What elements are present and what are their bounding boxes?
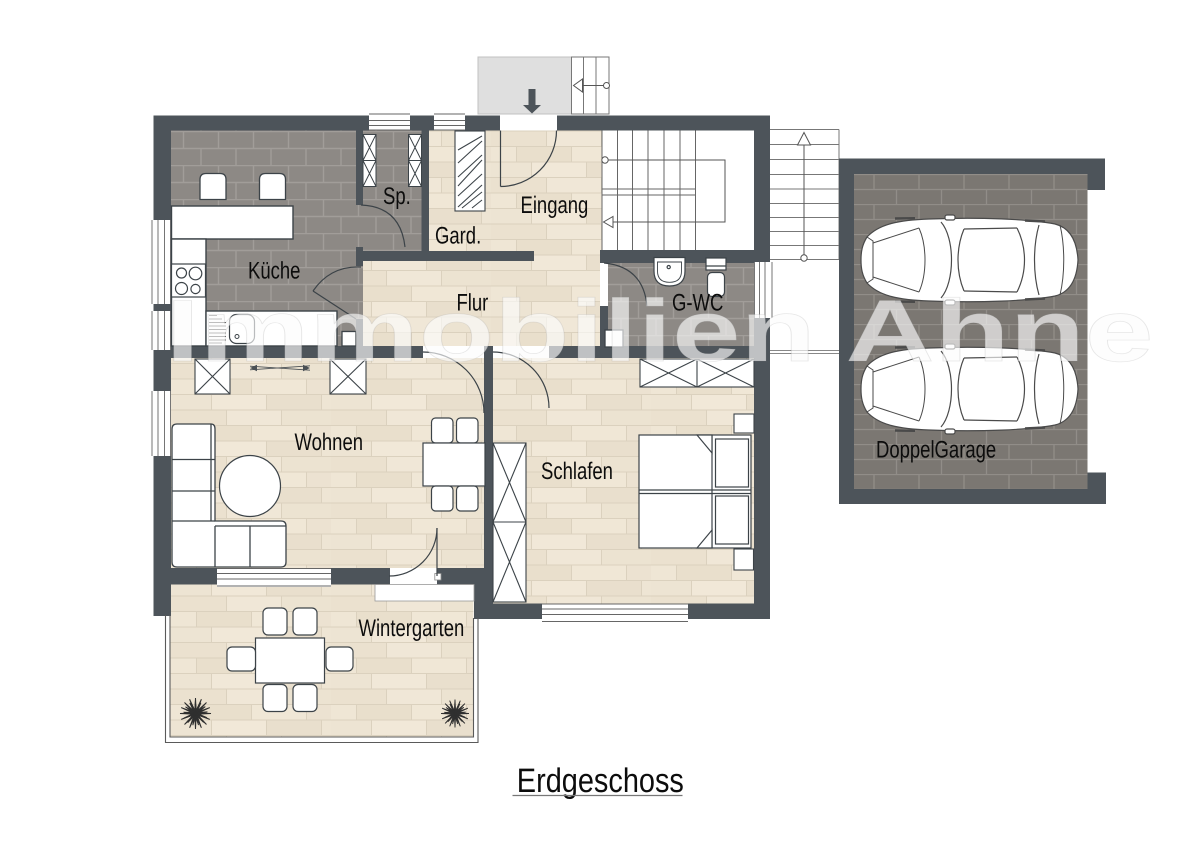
svg-text:Wohnen: Wohnen: [295, 429, 364, 456]
svg-text:Erdgeschoss: Erdgeschoss: [517, 762, 684, 800]
svg-text:Eingang: Eingang: [521, 192, 589, 219]
svg-text:Schlafen: Schlafen: [541, 458, 613, 485]
svg-text:Gard.: Gard.: [435, 223, 481, 250]
svg-text:DoppelGarage: DoppelGarage: [876, 437, 996, 464]
svg-text:Wintergarten: Wintergarten: [359, 615, 465, 642]
svg-text:Sp.: Sp.: [383, 183, 411, 210]
svg-text:Immobilien Ahne: Immobilien Ahne: [166, 281, 1154, 380]
